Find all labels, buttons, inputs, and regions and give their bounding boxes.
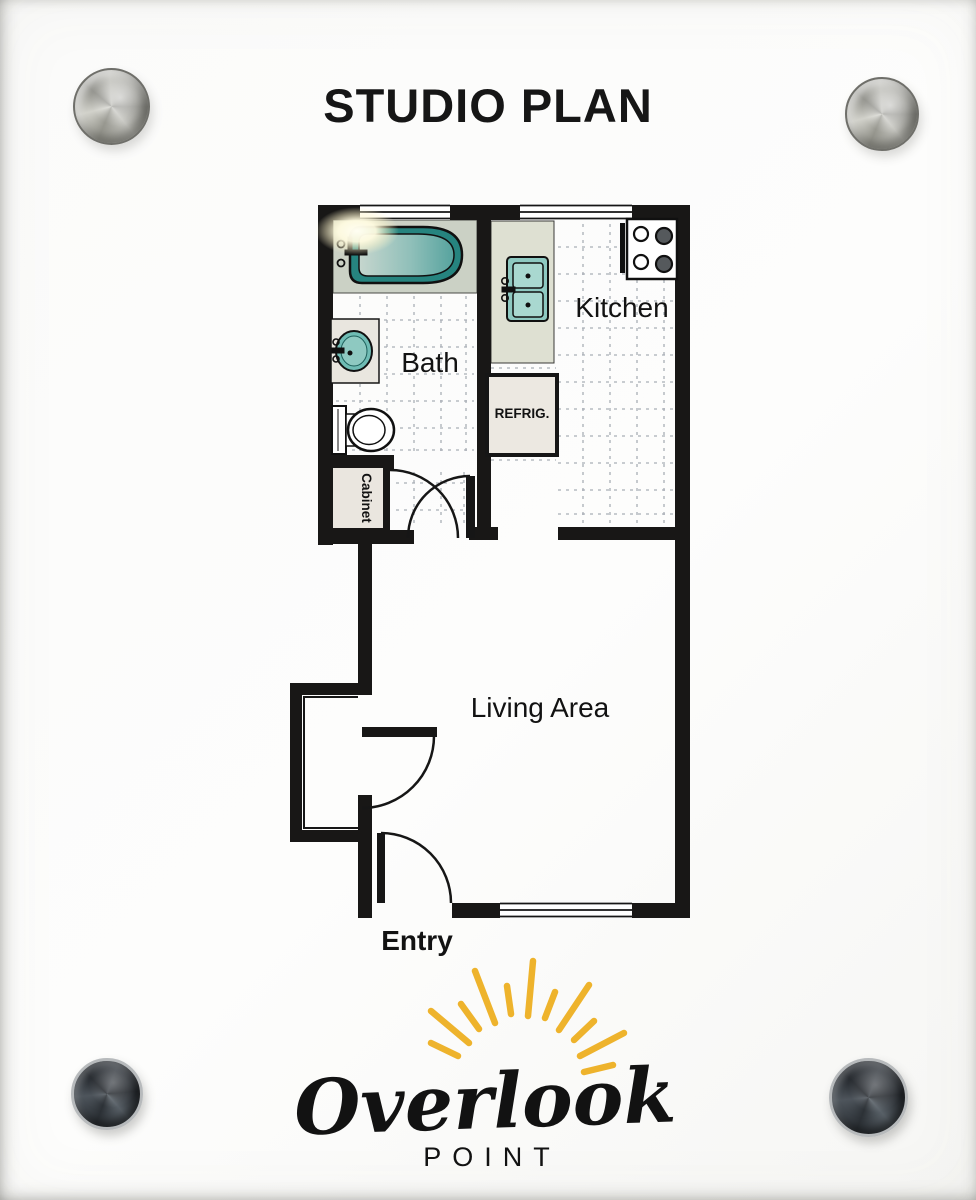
floor-plan-canvas: REFRIG. Cabinet Bath Kitchen Living Area…	[0, 0, 976, 1200]
wall-closet-door-header	[362, 727, 437, 737]
flash-glare	[315, 207, 399, 255]
wall-closet-left	[290, 683, 302, 842]
kitchen-label: Kitchen	[575, 292, 668, 323]
sunburst-ray	[559, 985, 589, 1030]
living-area-label: Living Area	[471, 692, 610, 723]
cabinet-label: Cabinet	[359, 473, 374, 523]
sunburst-ray	[528, 961, 533, 1016]
cabinet: Cabinet	[333, 468, 383, 528]
sunburst-ray	[507, 986, 511, 1014]
bath-door-leaf	[466, 476, 475, 538]
burner	[634, 227, 648, 241]
entry-label: Entry	[381, 925, 453, 956]
wall-kitchen-bottom	[558, 527, 690, 540]
closet-door-swing	[362, 736, 434, 808]
sunburst-ray	[431, 1043, 458, 1056]
stove	[620, 219, 677, 279]
burner	[634, 255, 648, 269]
wall-bottom-right-of-window	[630, 903, 690, 918]
bath-door-swing	[408, 476, 470, 538]
logo-brand-script: Overlook	[293, 1050, 678, 1152]
sunburst-ray	[431, 1011, 469, 1043]
wall-closet-top	[290, 683, 372, 695]
closet-inner-outline	[304, 697, 358, 828]
wall-east	[675, 205, 690, 918]
bath-sink	[331, 319, 379, 383]
window-living	[500, 902, 632, 918]
bath-label: Bath	[401, 347, 459, 378]
logo-brand-sub: POINT	[423, 1142, 561, 1172]
window-kitchen	[520, 204, 632, 220]
wall-closet-bottom	[290, 830, 362, 842]
logo: Overlook POINT	[293, 961, 678, 1172]
burner	[656, 228, 672, 244]
sunburst-ray	[545, 992, 555, 1018]
wall-entry-west	[358, 795, 372, 918]
sunburst-ray	[574, 1021, 594, 1040]
sign-board: STUDIO PLAN	[0, 0, 976, 1200]
wall-living-west	[358, 538, 372, 695]
refrig-label: REFRIG.	[495, 406, 550, 421]
wall-bottom-left-of-window	[452, 903, 502, 918]
entry-door-leaf	[377, 833, 385, 903]
toilet	[332, 406, 394, 454]
sunburst-ray	[461, 1004, 479, 1029]
sunburst-ray	[475, 971, 495, 1023]
burner	[656, 256, 672, 272]
refrigerator: REFRIG.	[487, 375, 557, 455]
entry-door-swing	[381, 833, 451, 903]
kitchen-sink	[502, 257, 548, 321]
